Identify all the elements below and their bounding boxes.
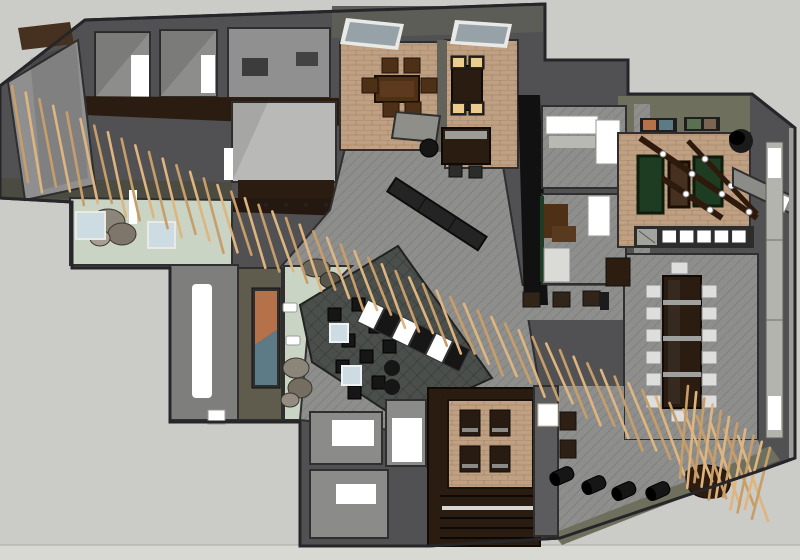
bar-slab [392,112,440,142]
conference-chair-right [702,351,717,364]
spotlight [746,209,752,215]
lounge-stool [360,350,373,363]
east-window-strip [766,142,783,438]
spotlight [660,151,666,157]
light-box-window [714,230,729,243]
pillar-chair-1 [560,412,576,430]
bar-stool [449,165,462,177]
conference-chair-left [646,285,661,298]
stair-light-strip [442,506,534,510]
lounge-pouf-1 [384,360,400,376]
light-box-window [679,230,694,243]
office-stool [583,291,600,306]
office-stool [523,292,540,307]
stairs-booth-block [428,386,576,546]
reception-table-2 [148,222,175,248]
bar-stool [469,166,482,178]
cylinder-seat-top [729,131,745,145]
conference-table-grain [668,280,680,404]
office-a-table [549,136,595,148]
office-b-desk-return [552,226,576,242]
floorplan-render: 3D rendered interior floor plan — top-do… [0,0,800,560]
skylight-2 [455,24,508,44]
picture-1b [659,120,673,130]
lit-chair-cushion [471,58,482,67]
office-a-sofa-2 [596,120,620,164]
spotlight [689,171,695,177]
spotlight [702,156,708,162]
table-clasp-3 [663,372,701,377]
light-box-window [697,230,712,243]
dining-chair [362,78,378,93]
east-window-glow-2 [768,396,781,430]
picture-2a [687,119,701,129]
dining-table-top [380,81,414,97]
office-b-green-strip [540,196,544,282]
side-small-seat [600,292,609,310]
kitchen-counter [238,180,334,200]
kitchen [224,102,345,216]
bar-round-table [420,139,438,157]
restroom-3-panel [336,484,376,504]
kitchen-knob [264,203,268,207]
lounge-table-2 [342,366,361,385]
conference-chair-right [702,373,717,386]
booth-chair-rail [462,428,478,432]
picture-1a [643,120,656,130]
reception-area [70,190,232,265]
bar-counter-top [445,131,487,139]
lounge-pouf-2 [384,379,400,395]
pillar-chair-2 [560,440,576,458]
lounge-stool [383,340,396,353]
gameroom-window-row [662,230,746,243]
lit-chair-cushion [471,104,482,113]
game-table-green-1 [638,156,663,213]
room-a-door-glow [131,55,149,97]
conference-chair-right [702,307,717,320]
restroom-1-panel [332,420,374,446]
east-window-glow-1 [768,148,781,178]
kitchen-knob [304,203,308,207]
booth-chair-rail [492,464,508,468]
spotlight [719,191,725,197]
dining-chair [421,78,437,93]
gallery-corridor [170,265,238,424]
kitchen-door-glow [224,148,233,180]
kitchen-knob [324,203,328,207]
office-a-sofa-1 [546,116,598,134]
office-b-sofa [544,248,570,282]
booth-chair [490,446,510,472]
kitchen-knob [284,203,288,207]
corridor-light-strip [192,284,212,398]
mint-bench [286,336,300,345]
mint-bench [283,303,297,312]
stone-4 [283,358,309,378]
conference-chair-left [646,351,661,364]
side-armchair [606,258,630,286]
reception-table-1 [76,212,105,239]
office-stool [553,292,570,307]
conference-chair-left [646,373,661,386]
feature-wall [238,268,282,420]
room-c-cabinet [296,52,318,66]
office-b-panel [588,196,610,236]
lit-chair-cushion [453,104,464,113]
spotlight [683,191,689,197]
spotlight [707,207,713,213]
stone-2 [108,223,136,245]
lounge-stool [348,386,361,399]
east-window-wall [766,128,795,458]
picture-2b [704,119,716,129]
conference-chair-head [671,262,688,274]
dining-chair [382,58,398,73]
lounge-stool [328,308,341,321]
light-box-window [662,230,677,243]
conference-chair-right [702,285,717,298]
dining-chair [404,58,420,73]
stone-6 [281,393,299,407]
conference-chair-left [646,329,661,342]
lit-chair-cushion [453,58,464,67]
booth-chair-rail [462,464,478,468]
lounge-table-1 [330,324,348,342]
room-c-desk [242,58,268,76]
conference-chair-left [646,307,661,320]
conference-chair-right [702,329,717,342]
booth-chair [460,410,480,436]
top-left-rooms [95,28,330,98]
floorplan-svg [0,0,800,560]
booth-chair [460,446,480,472]
table-clasp-2 [663,336,701,341]
booth-chair [490,410,510,436]
restroom-2-panel [392,418,422,462]
pillar-lamp [538,404,558,426]
light-box-window [732,230,747,243]
room-b-door-glow [201,55,215,93]
office-stool-row [523,291,600,307]
table-clasp-1 [663,300,701,305]
booth-chair-rail [492,428,508,432]
lounge-stool [372,376,385,389]
